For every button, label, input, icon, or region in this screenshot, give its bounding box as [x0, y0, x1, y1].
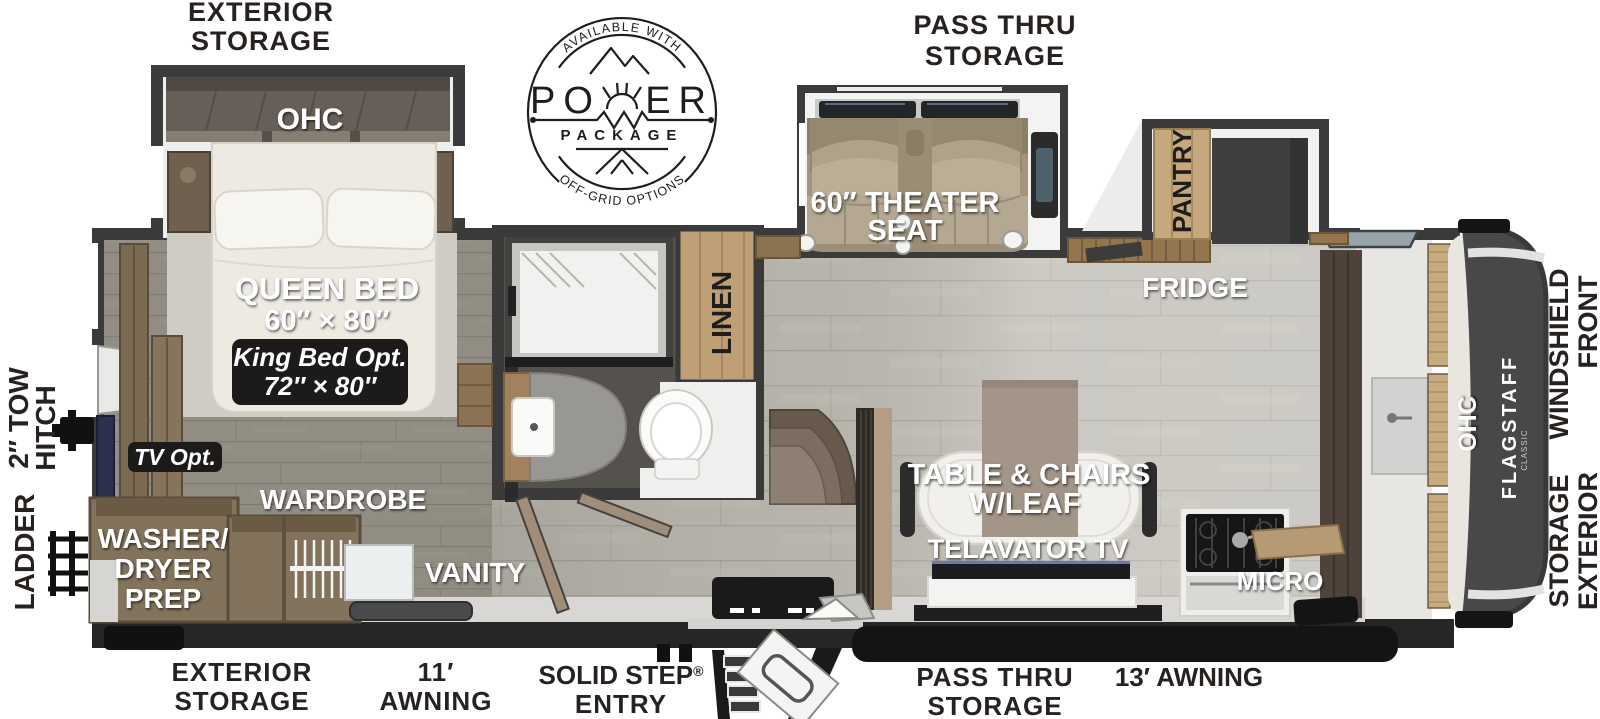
svg-text:PASS THRU: PASS THRU: [916, 662, 1073, 692]
svg-text:MICRO: MICRO: [1237, 566, 1324, 596]
svg-text:PASS THRU: PASS THRU: [913, 10, 1076, 40]
svg-text:FLAGSTAFF: FLAGSTAFF: [1499, 355, 1521, 499]
svg-text:PACKAGE: PACKAGE: [561, 127, 684, 144]
svg-text:EXTERIOR: EXTERIOR: [172, 657, 313, 687]
svg-text:VANITY: VANITY: [425, 557, 526, 588]
svg-text:EXTERIOR: EXTERIOR: [188, 0, 334, 27]
svg-text:60″ × 80″: 60″ × 80″: [264, 305, 389, 337]
svg-text:QUEEN BED: QUEEN BED: [235, 271, 419, 306]
svg-text:11′: 11′: [418, 657, 455, 687]
svg-text:LINEN: LINEN: [706, 271, 737, 355]
svg-text:WARDROBE: WARDROBE: [260, 484, 426, 515]
svg-text:PREP: PREP: [125, 583, 201, 614]
svg-text:PO: PO: [530, 80, 601, 122]
svg-text:PANTRY: PANTRY: [1167, 129, 1197, 233]
svg-text:FRONT: FRONT: [1573, 275, 1600, 368]
svg-text:TELAVATOR TV: TELAVATOR TV: [928, 534, 1129, 564]
svg-text:King Bed Opt.: King Bed Opt.: [233, 342, 406, 372]
svg-text:STORAGE: STORAGE: [927, 691, 1062, 719]
svg-text:13′ AWNING: 13′ AWNING: [1115, 662, 1263, 692]
svg-text:DRYER: DRYER: [115, 553, 212, 584]
svg-text:ER: ER: [645, 80, 714, 122]
svg-text:W/LEAF: W/LEAF: [969, 488, 1080, 520]
svg-text:STORAGE: STORAGE: [1544, 474, 1574, 607]
svg-text:FRIDGE: FRIDGE: [1142, 272, 1248, 303]
svg-text:CLASSIC: CLASSIC: [1520, 429, 1529, 470]
svg-text:AWNING: AWNING: [380, 686, 493, 716]
svg-text:LADDER: LADDER: [9, 494, 40, 611]
svg-text:SEAT: SEAT: [867, 215, 942, 247]
svg-text:OHC: OHC: [1454, 396, 1482, 452]
svg-text:WASHER/: WASHER/: [98, 523, 229, 554]
svg-text:ENTRY: ENTRY: [575, 689, 667, 719]
svg-text:TV Opt.: TV Opt.: [134, 444, 216, 470]
svg-text:STORAGE: STORAGE: [174, 686, 309, 716]
svg-text:SOLID STEP®: SOLID STEP®: [539, 660, 705, 690]
svg-text:STORAGE: STORAGE: [191, 26, 331, 56]
svg-text:OHC: OHC: [277, 103, 344, 136]
svg-text:EXTERIOR: EXTERIOR: [1573, 472, 1600, 610]
svg-text:HITCH: HITCH: [30, 385, 61, 471]
svg-text:72″ × 80″: 72″ × 80″: [264, 371, 378, 401]
svg-text:TABLE & CHAIRS: TABLE & CHAIRS: [908, 459, 1151, 491]
svg-text:WINDSHIELD: WINDSHIELD: [1544, 269, 1574, 440]
svg-text:STORAGE: STORAGE: [925, 41, 1065, 71]
